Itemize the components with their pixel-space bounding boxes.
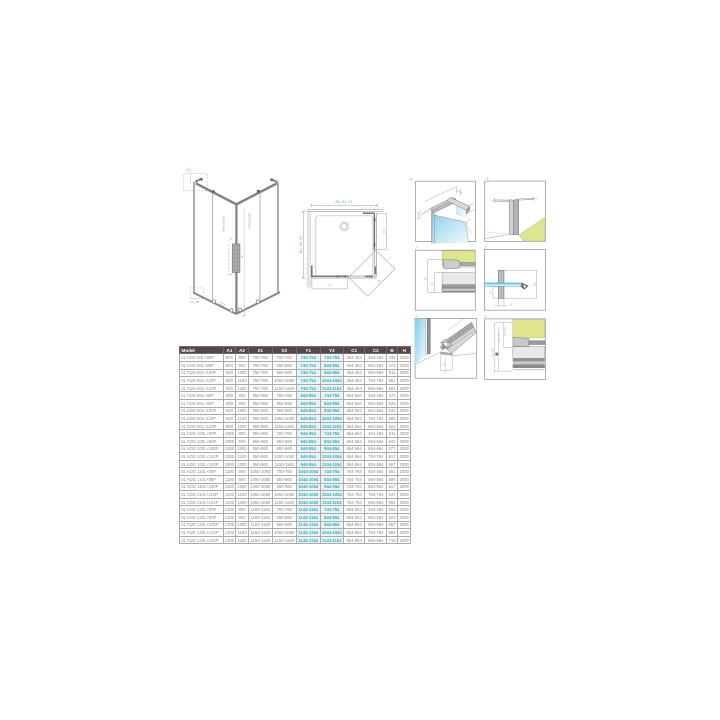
svg-text:12: 12: [510, 302, 514, 306]
svg-text:1a: 1a: [409, 177, 413, 181]
svg-text:A1, A2: A1, A2: [491, 348, 495, 357]
svg-text:X1, X2: X1, X2: [497, 333, 501, 342]
svg-text:43: 43: [423, 277, 427, 281]
svg-text:4: 4: [416, 314, 418, 318]
svg-text:C2: C2: [382, 229, 386, 233]
svg-text:13: 13: [488, 291, 492, 295]
svg-text:1880 (1900): 1880 (1900): [247, 213, 251, 229]
svg-text:1A, 1B: 1A, 1B: [190, 300, 199, 304]
svg-text:1b: 1b: [485, 177, 489, 181]
svg-text:14: 14: [443, 362, 447, 366]
svg-text:Y1, Y2: Y1, Y2: [503, 327, 507, 336]
svg-text:2: 2: [416, 246, 418, 250]
svg-text:B: B: [241, 255, 243, 259]
svg-text:3: 3: [485, 245, 487, 249]
svg-text:A2, X2, Y2: A2, X2, Y2: [299, 236, 303, 254]
svg-text:C1: C1: [328, 282, 332, 286]
svg-text:34: 34: [532, 283, 536, 287]
svg-text:A1, X1, Y1: A1, X1, Y1: [335, 200, 353, 204]
svg-text:5: 5: [485, 314, 487, 318]
svg-text:21: 21: [430, 282, 434, 286]
svg-text:1880 (1900): 1880 (1900): [222, 216, 226, 232]
